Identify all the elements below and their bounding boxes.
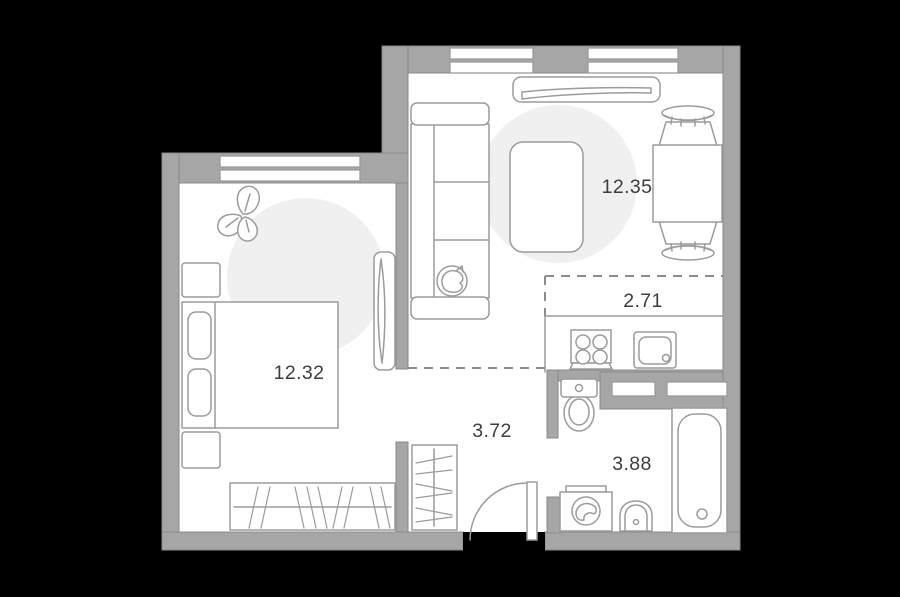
chair-seat: [659, 221, 717, 244]
window-living-2-pane-a: [588, 48, 678, 59]
wardrobe-bedroom: [230, 483, 395, 530]
washing-machine: [560, 486, 612, 531]
window-bedroom-pane-a: [220, 156, 360, 167]
bathroom-area-label: 3.88: [612, 453, 652, 475]
window-living-1-pane-a: [450, 48, 533, 59]
sleeping-cat: [437, 266, 467, 296]
dining-chair-top: [659, 106, 717, 146]
wall-bottom-right: [545, 532, 740, 550]
chair-seat: [659, 122, 717, 146]
wardrobe-hallway: [412, 445, 457, 530]
door-leaf: [527, 482, 537, 540]
bedroom-area-label: 12.32: [274, 362, 325, 384]
burner: [593, 350, 607, 364]
pillow: [188, 369, 211, 416]
sofa-armrest-top: [411, 103, 489, 125]
wall-left: [162, 153, 179, 550]
stove: [570, 330, 612, 369]
wall-bedroom-living-divider: [396, 183, 408, 369]
burner: [576, 335, 590, 349]
sofa: [411, 103, 489, 319]
toilet-tank: [561, 379, 597, 397]
kitchen-sink: [634, 332, 676, 368]
bathtub: [672, 408, 727, 533]
tv-console: [513, 77, 660, 102]
living-room-area-label: 12.35: [602, 176, 653, 198]
sofa-backrest: [411, 124, 434, 298]
hallway-area-label: 3.72: [472, 420, 512, 442]
pillow: [188, 312, 211, 359]
bathroom-sink: [620, 501, 652, 531]
floor-plan-stage: 12.35 2.71 12.32 3.72 3.88: [0, 0, 900, 597]
dining-chair-bottom: [659, 221, 717, 260]
wall-washer-nook: [547, 497, 560, 533]
duct-shaft-2: [667, 382, 727, 396]
floor-plan: 12.35 2.71 12.32 3.72 3.88: [0, 0, 900, 597]
nightstand-bottom: [182, 432, 220, 468]
burner: [576, 350, 590, 364]
wall-toilet-nook: [547, 370, 558, 438]
wall-top: [382, 46, 740, 73]
wall-bottom-left: [162, 532, 463, 550]
kitchen-area-label: 2.71: [623, 290, 663, 312]
toilet: [561, 379, 597, 431]
dining-table: [653, 145, 722, 222]
sofa-armrest-bottom: [411, 297, 489, 319]
window-living-1-pane-b: [450, 62, 533, 73]
window-living-2-pane-b: [588, 62, 678, 73]
window-bedroom-pane-b: [220, 170, 360, 181]
burner: [593, 335, 607, 349]
coffee-table: [510, 142, 583, 252]
mirror: [374, 252, 395, 370]
wall-bedroom-hall-divider: [396, 442, 408, 532]
duct-shaft-1: [612, 382, 655, 396]
nightstand-top: [182, 263, 220, 297]
